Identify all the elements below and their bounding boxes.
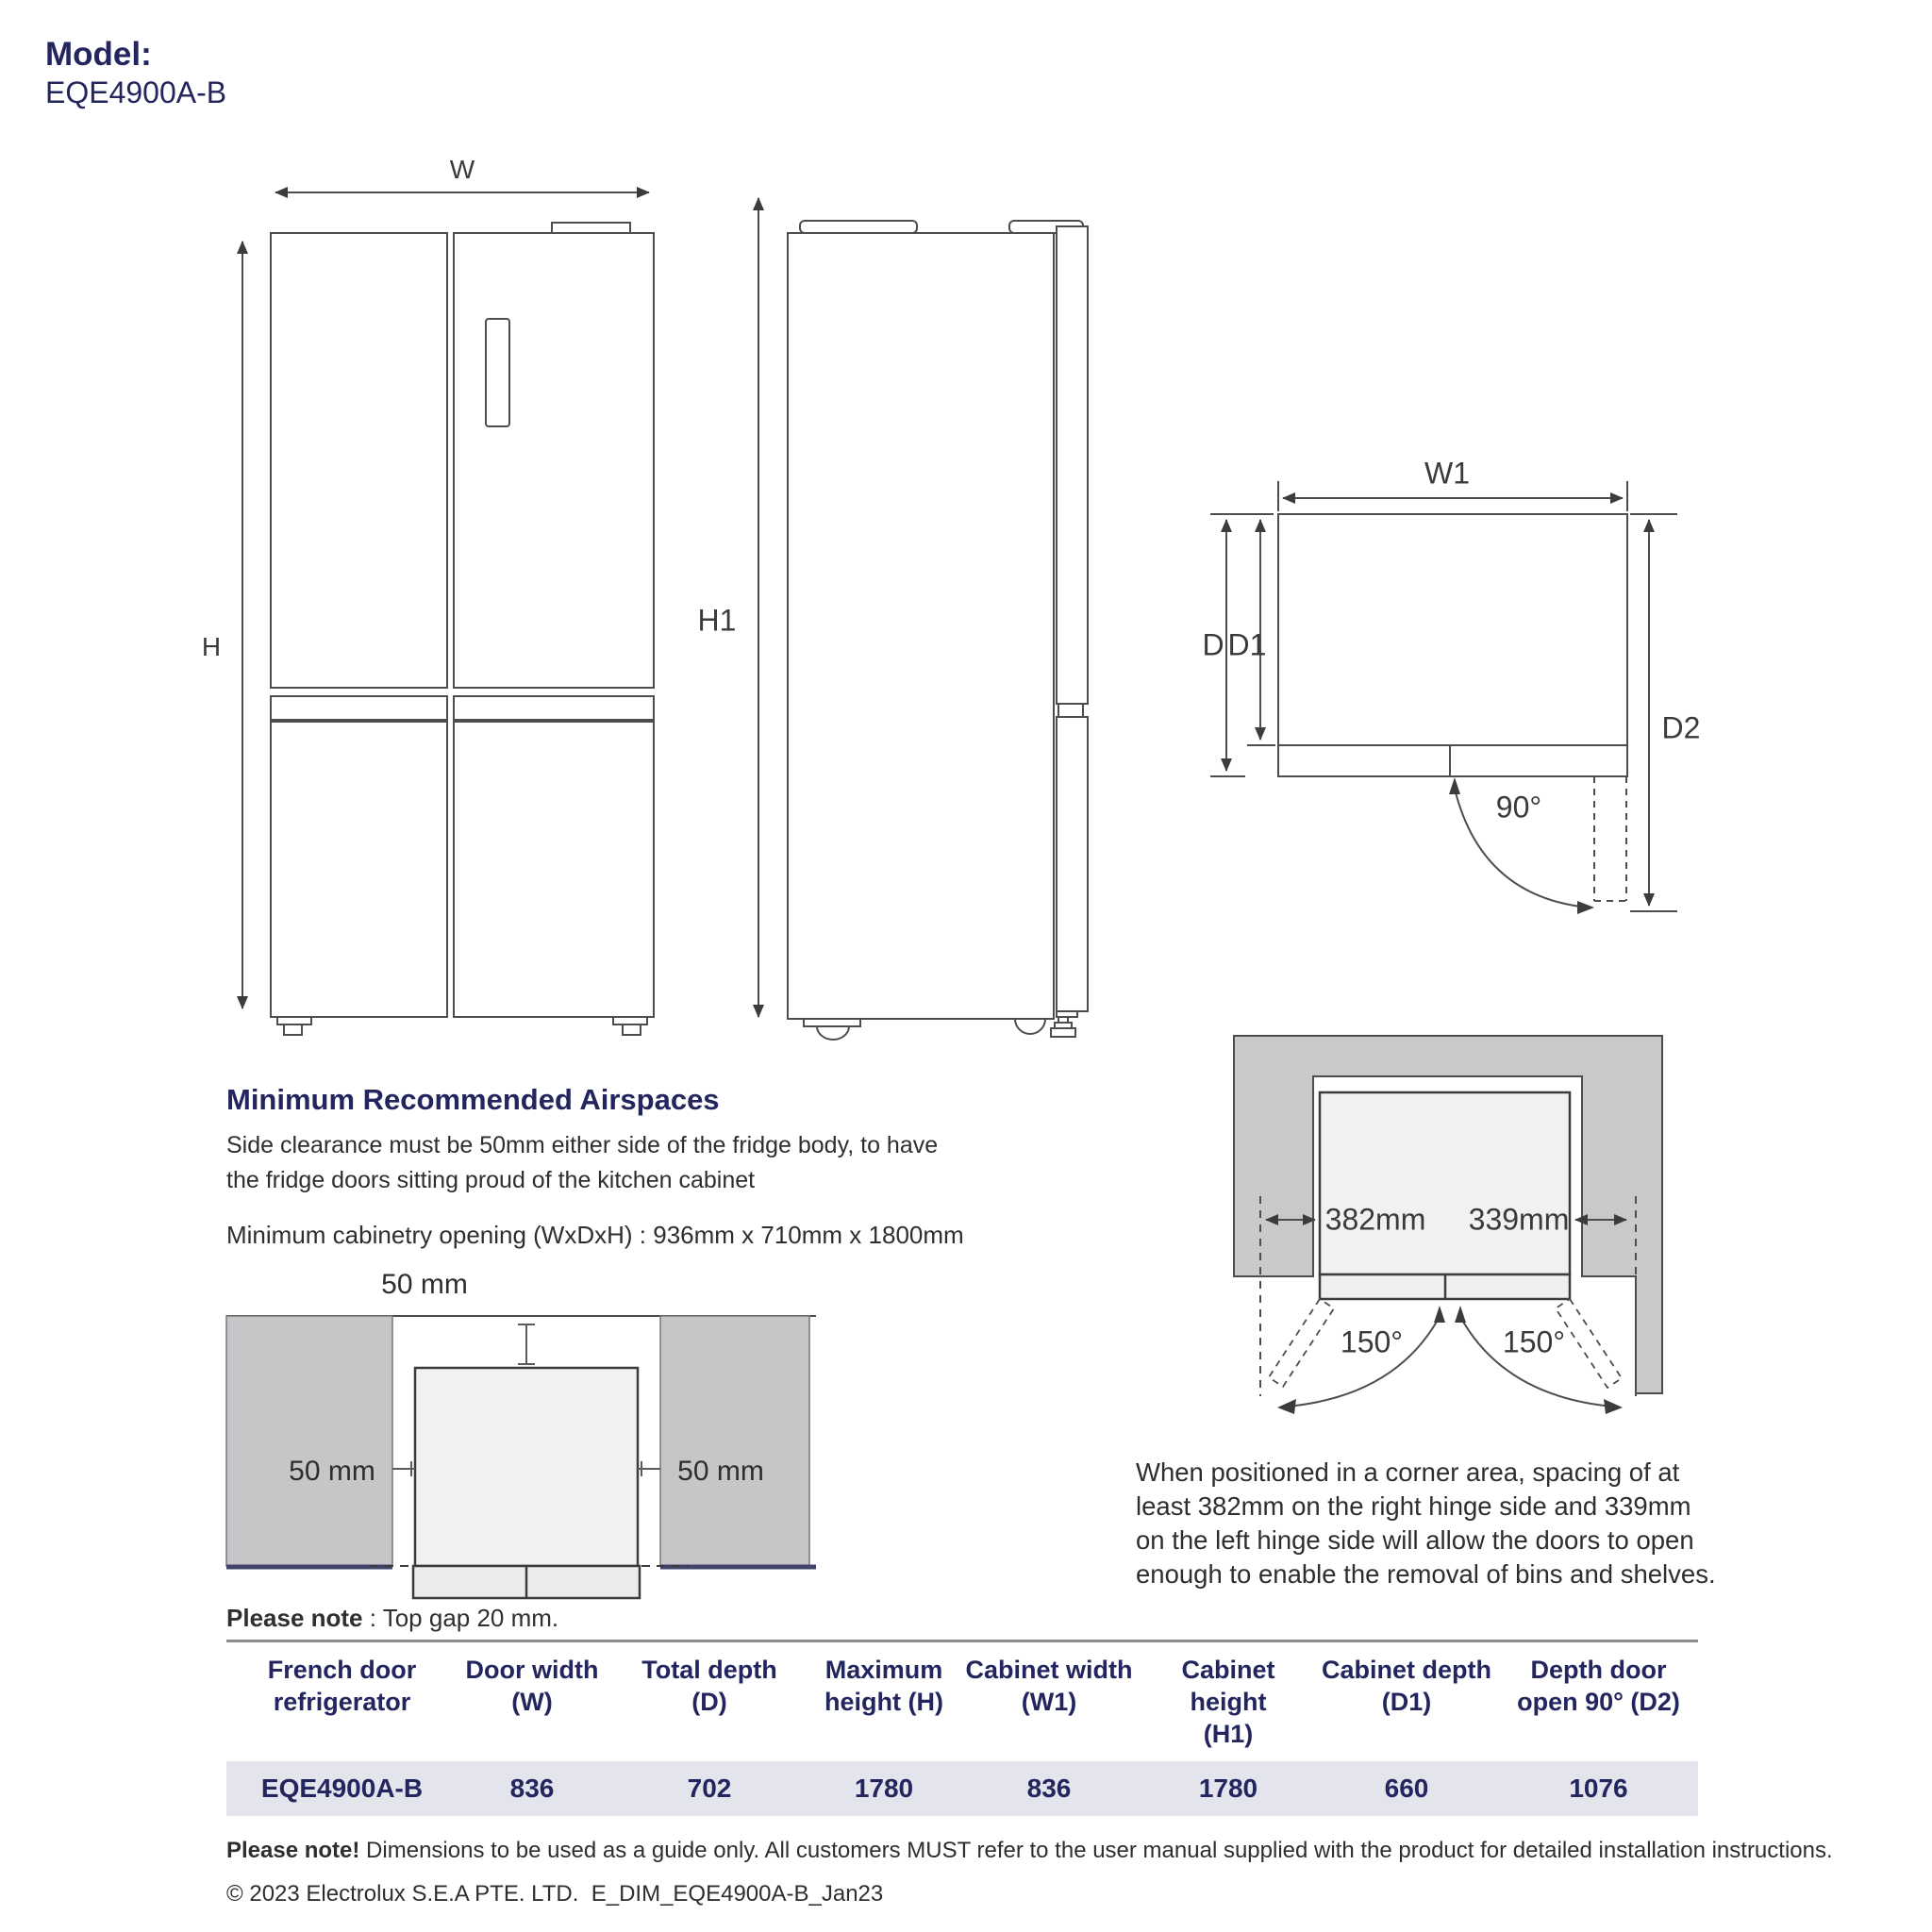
cabinetry-opening-text: Minimum cabinetry opening (WxDxH) : 936m… bbox=[226, 1221, 964, 1250]
height1-dim-label: H1 bbox=[698, 604, 737, 639]
right-cabinet-block bbox=[660, 1316, 809, 1566]
footer-disclaimer: Please note! Dimensions to be used as a … bbox=[226, 1838, 1833, 1864]
corner-note-line1: When positioned in a corner area, spacin… bbox=[1136, 1456, 1716, 1490]
top-door-band bbox=[1278, 745, 1627, 776]
top-gap-label: 50 mm bbox=[381, 1269, 468, 1301]
col-header-max-height: Maximumheight (H) bbox=[812, 1654, 956, 1750]
front-lower-left-door bbox=[271, 722, 447, 1017]
spec-table-row: EQE4900A-B 836 702 1780 836 1780 660 107… bbox=[226, 1761, 1698, 1816]
left-cabinet-block bbox=[226, 1316, 392, 1566]
left-gap-label: 50 mm bbox=[289, 1456, 375, 1488]
dimension-sheet: Model: EQE4900A-B W H H1 W1 D D1 D2 90° … bbox=[0, 0, 1932, 1932]
front-lower-right-door bbox=[454, 722, 654, 1017]
right-spacing-label: 339mm bbox=[1469, 1203, 1570, 1238]
top-cabinet-body bbox=[1278, 514, 1627, 745]
footer-note-text: Dimensions to be used as a guide only. A… bbox=[359, 1838, 1832, 1863]
front-view-drawing bbox=[242, 192, 654, 1035]
side-upper-door bbox=[1057, 226, 1088, 704]
cell-cabinet-depth: 660 bbox=[1314, 1761, 1499, 1816]
right-gap-label: 50 mm bbox=[677, 1456, 764, 1488]
side-view-drawing bbox=[758, 198, 1088, 1040]
cell-cabinet-width: 836 bbox=[956, 1761, 1142, 1816]
depth2-dim-label: D2 bbox=[1662, 711, 1701, 746]
top-gap-note-text: : Top gap 20 mm. bbox=[363, 1604, 559, 1632]
model-number: EQE4900A-B bbox=[45, 75, 226, 110]
corner-note: When positioned in a corner area, spacin… bbox=[1136, 1456, 1716, 1591]
top-view-drawing bbox=[1210, 481, 1677, 914]
col-header-total-depth: Total depth(D) bbox=[607, 1654, 812, 1750]
corner-note-line4: enough to enable the removal of bins and… bbox=[1136, 1557, 1716, 1591]
airspaces-heading: Minimum Recommended Airspaces bbox=[226, 1083, 720, 1117]
cabinet-width-dim-label: W1 bbox=[1424, 457, 1470, 491]
airspaces-text-line1: Side clearance must be 50mm either side … bbox=[226, 1132, 938, 1159]
depth-dim-label: D bbox=[1202, 628, 1224, 663]
col-header-model: French doorrefrigerator bbox=[226, 1654, 458, 1750]
cell-door-width: 836 bbox=[458, 1761, 607, 1816]
corner-note-line2: least 382mm on the right hinge side and … bbox=[1136, 1490, 1716, 1524]
cell-max-height: 1780 bbox=[812, 1761, 956, 1816]
col-header-depth-door-open: Depth dooropen 90° (D2) bbox=[1499, 1654, 1698, 1750]
airspace-fridge-body bbox=[415, 1368, 638, 1566]
cell-cabinet-height: 1780 bbox=[1142, 1761, 1314, 1816]
corner-note-line3: on the left hinge side will allow the do… bbox=[1136, 1524, 1716, 1557]
spec-table-header: French doorrefrigerator Door width(W) To… bbox=[226, 1642, 1698, 1750]
front-feet bbox=[277, 1017, 647, 1035]
height-dim-label: H bbox=[202, 632, 221, 662]
cell-total-depth: 702 bbox=[607, 1761, 812, 1816]
top-gap-note-label: Please note bbox=[226, 1604, 363, 1632]
front-display-panel bbox=[486, 319, 509, 426]
side-body bbox=[788, 233, 1054, 1019]
footer-note-label: Please note! bbox=[226, 1838, 359, 1863]
top-gap-note: Please note : Top gap 20 mm. bbox=[226, 1604, 558, 1633]
model-label: Model: bbox=[45, 36, 152, 74]
col-header-door-width: Door width(W) bbox=[458, 1654, 607, 1750]
door-angle-label: 90° bbox=[1496, 791, 1541, 825]
spec-table: French doorrefrigerator Door width(W) To… bbox=[226, 1640, 1698, 1816]
left-spacing-label: 382mm bbox=[1325, 1203, 1426, 1238]
cell-depth-door-open: 1076 bbox=[1499, 1761, 1698, 1816]
footer-copyright: © 2023 Electrolux S.E.A PTE. LTD. E_DIM_… bbox=[226, 1881, 883, 1907]
right-angle-label: 150° bbox=[1503, 1325, 1565, 1360]
front-upper-left-door bbox=[271, 233, 447, 688]
col-header-cabinet-width: Cabinet width(W1) bbox=[956, 1654, 1142, 1750]
airspaces-text-line2: the fridge doors sitting proud of the ki… bbox=[226, 1167, 755, 1194]
side-lower-door bbox=[1057, 717, 1088, 1011]
left-angle-label: 150° bbox=[1341, 1325, 1403, 1360]
depth1-dim-label: D1 bbox=[1228, 628, 1267, 663]
corner-diagram bbox=[1234, 1036, 1662, 1414]
col-header-cabinet-height: Cabinet height(H1) bbox=[1142, 1654, 1314, 1750]
front-upper-right-door bbox=[454, 233, 654, 688]
cell-model: EQE4900A-B bbox=[226, 1761, 458, 1816]
corner-fridge-body bbox=[1320, 1092, 1570, 1274]
col-header-cabinet-depth: Cabinet depth(D1) bbox=[1314, 1654, 1499, 1750]
width-dim-label: W bbox=[450, 155, 475, 185]
